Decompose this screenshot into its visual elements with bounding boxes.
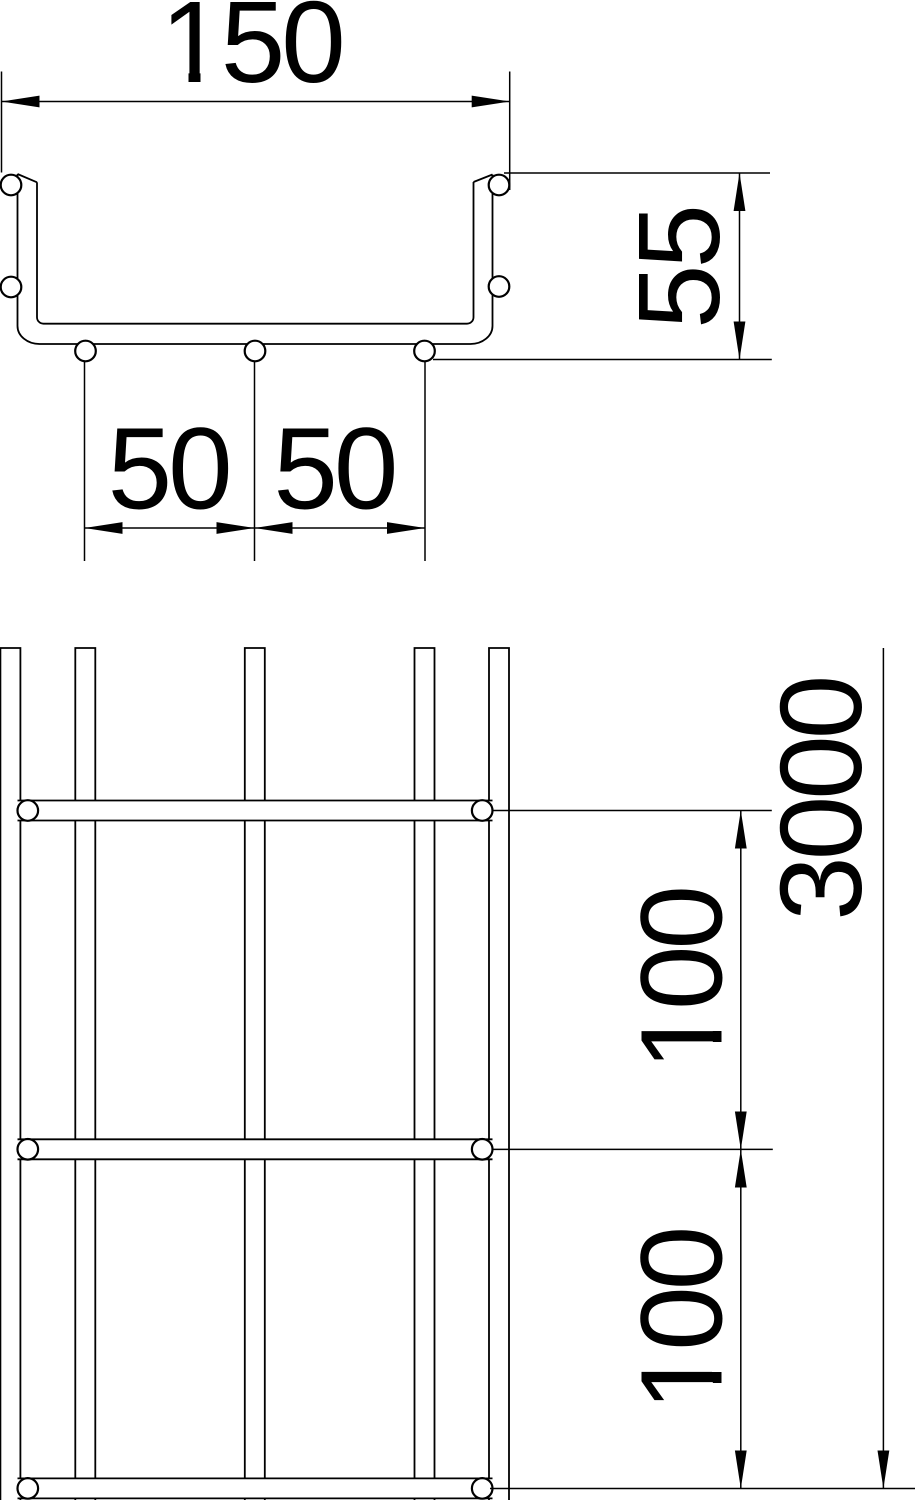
svg-text:55: 55 (614, 208, 744, 329)
svg-text:100: 100 (617, 889, 747, 1071)
svg-text:50: 50 (108, 403, 229, 533)
svg-text:50: 50 (273, 403, 394, 533)
svg-text:100: 100 (617, 1230, 747, 1412)
svg-text:150: 150 (160, 0, 342, 107)
svg-text:3000: 3000 (756, 679, 886, 921)
